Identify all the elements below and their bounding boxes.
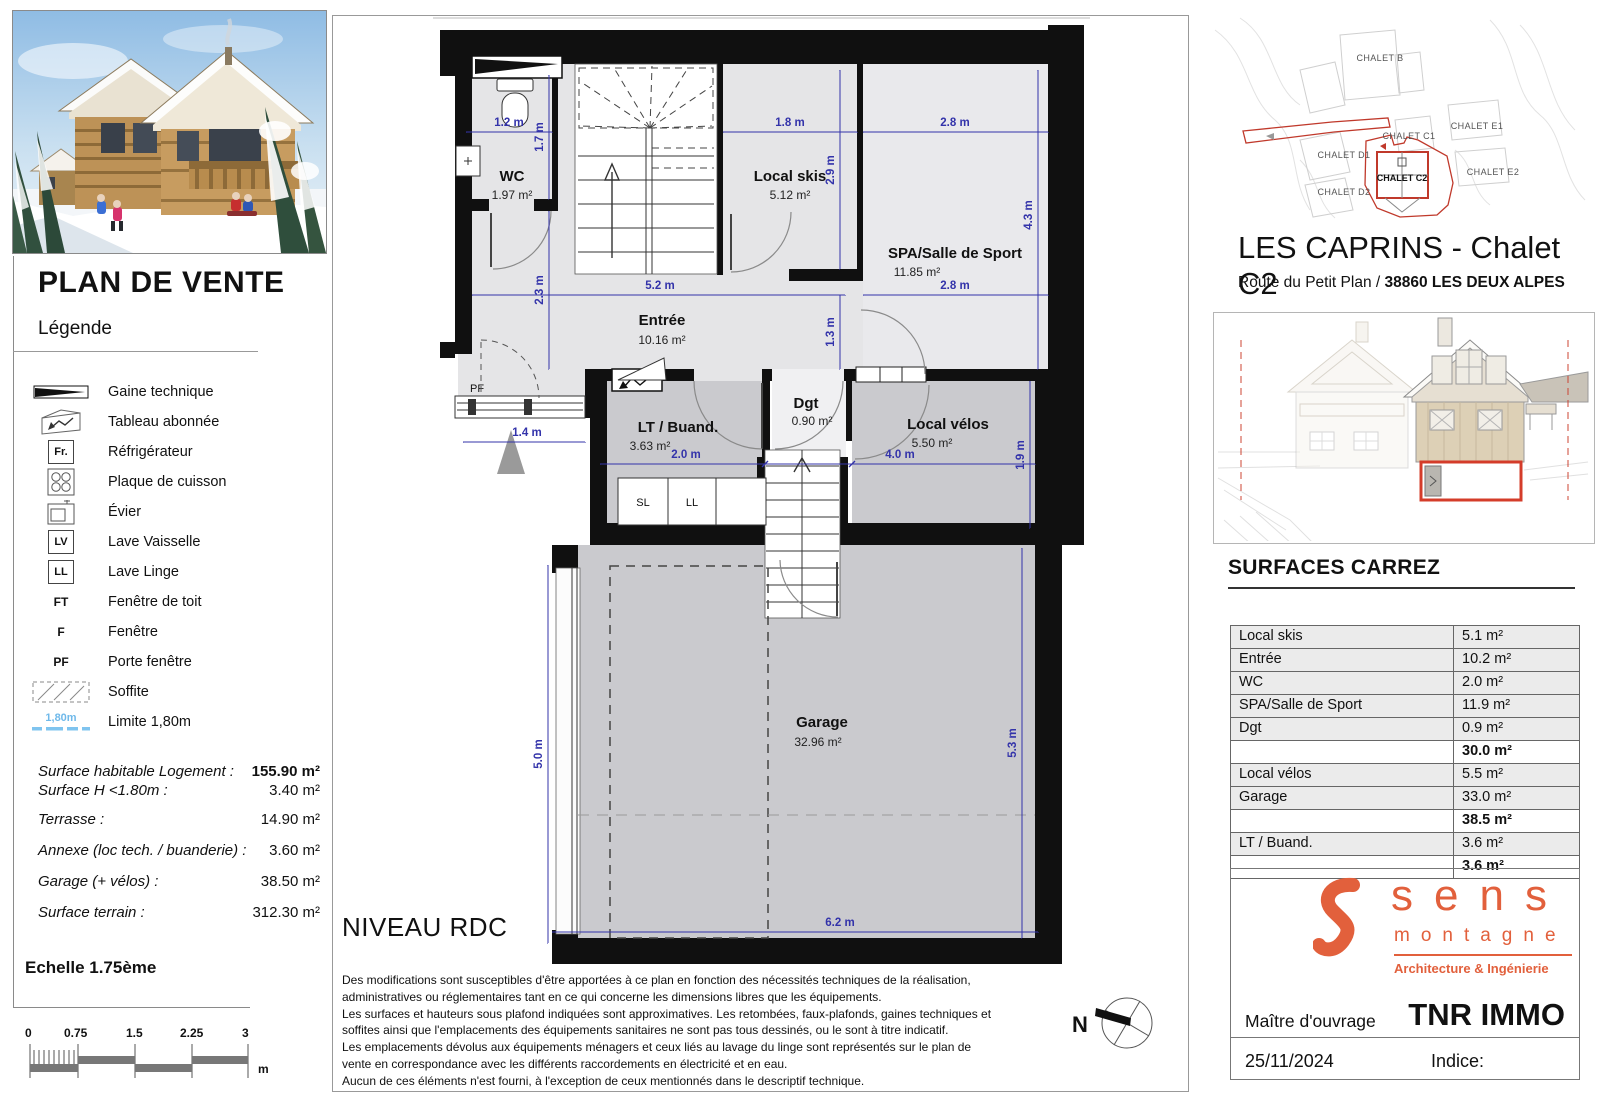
- row-value: 5.1 m²: [1453, 626, 1579, 648]
- dim-label: 1.3 m: [825, 317, 837, 346]
- dim-label: 5.0 m: [533, 739, 545, 768]
- stair-down: [765, 450, 840, 618]
- logo-tagline: Architecture & Ingénierie: [1394, 961, 1549, 976]
- stair-up: [575, 64, 717, 274]
- indice-label: Indice:: [1431, 1051, 1484, 1072]
- disclaimer-line: Aucun de ces éléments n'est fourni, à l'…: [342, 1073, 1182, 1090]
- row-label: LT / Buand.: [1231, 833, 1453, 855]
- table-row: Entrée10.2 m²: [1231, 648, 1579, 671]
- room-name: Garage: [796, 714, 848, 731]
- level-label: NIVEAU RDC: [342, 912, 507, 943]
- dim-label: 1.7 m: [534, 122, 546, 151]
- disclaimer-line: Les emplacements dévolus aux équipements…: [342, 1039, 1182, 1056]
- row-label: Dgt: [1231, 718, 1453, 740]
- pf-label: PF: [470, 383, 484, 395]
- site-label-chalet-b: CHALET B: [1356, 53, 1403, 63]
- room-name: Entrée: [639, 312, 686, 329]
- row-value: 30.0 m²: [1453, 741, 1579, 763]
- table-row: Local vélos5.5 m²: [1231, 763, 1579, 786]
- dim-label: 1.2 m: [494, 117, 523, 129]
- dim-label: 5.2 m: [645, 280, 674, 292]
- sens-montagne-logo-icon: [1313, 875, 1371, 965]
- site-plan: CHALET B CHALET C1 CHALET D1 CHALET D2 C…: [1210, 10, 1600, 225]
- room-area: 10.16 m²: [638, 333, 685, 347]
- disclaimer-line: Des modifications sont susceptibles d'êt…: [342, 972, 1182, 989]
- row-value: 38.5 m²: [1453, 810, 1579, 832]
- logo-brand: sens: [1391, 871, 1568, 921]
- row-label: Garage: [1231, 787, 1453, 809]
- title-block: sens montagne Architecture & Ingénierie …: [1230, 868, 1580, 1080]
- logo-underline: [1394, 954, 1572, 956]
- dim-label: 2.9 m: [825, 155, 837, 184]
- table-row-subtotal: 30.0 m²: [1231, 740, 1579, 763]
- logo-sub: montagne: [1394, 925, 1567, 947]
- row-label: WC: [1231, 672, 1453, 694]
- carrez-title: SURFACES CARREZ: [1228, 556, 1575, 589]
- dim-label: 2.3 m: [534, 275, 546, 304]
- dim-label: 2.8 m: [940, 280, 969, 292]
- dim-label: 5.3 m: [1007, 728, 1019, 757]
- elevation-view: [1213, 312, 1595, 544]
- closet-label-ll: LL: [686, 497, 698, 509]
- double-door-leaf: [856, 367, 926, 382]
- room-name: SPA/Salle de Sport: [888, 245, 1022, 262]
- disclaimer-line: vente en correspondance avec les différe…: [342, 1056, 1182, 1073]
- table-row: Garage33.0 m²: [1231, 786, 1579, 809]
- site-label-chalet-d1: CHALET D1: [1318, 150, 1371, 160]
- table-row: SPA/Salle de Sport11.9 m²: [1231, 694, 1579, 717]
- table-row-subtotal: 38.5 m²: [1231, 809, 1579, 832]
- dim-label: 6.2 m: [825, 917, 854, 929]
- title-block-divider: [1231, 1037, 1579, 1038]
- room-area: 0.90 m²: [792, 414, 833, 428]
- disclaimer-line: Les surfaces et hauteurs sous plafond in…: [342, 1006, 1182, 1023]
- room-area: 3.63 m²: [630, 439, 671, 453]
- row-value: 5.5 m²: [1453, 764, 1579, 786]
- room-area: 11.85 m²: [894, 265, 940, 279]
- table-row: Dgt0.9 m²: [1231, 717, 1579, 740]
- room-area: 5.50 m²: [912, 436, 953, 450]
- row-label: SPA/Salle de Sport: [1231, 695, 1453, 717]
- dim-label: 4.3 m: [1023, 200, 1035, 229]
- room-area: 1.97 m²: [492, 188, 533, 202]
- row-value: 0.9 m²: [1453, 718, 1579, 740]
- dim-label: 1.8 m: [775, 117, 804, 129]
- room-area: 5.12 m²: [770, 188, 811, 202]
- site-label-chalet-c2: CHALET C2: [1377, 173, 1428, 183]
- room-name: WC: [500, 168, 525, 185]
- garage-door: [556, 568, 580, 934]
- closet-units: SL LL: [618, 478, 766, 525]
- dim-label: 2.0 m: [671, 449, 700, 461]
- owner-name: TNR IMMO: [1408, 997, 1565, 1033]
- project-address: Route du Petit Plan / 38860 LES DEUX ALP…: [1238, 274, 1565, 292]
- row-value: 11.9 m²: [1453, 695, 1579, 717]
- room-name: LT / Buand.: [638, 419, 719, 436]
- row-value: 3.6 m²: [1453, 833, 1579, 855]
- row-label: Entrée: [1231, 649, 1453, 671]
- owner-label: Maître d'ouvrage: [1245, 1011, 1376, 1032]
- row-label: Local vélos: [1231, 764, 1453, 786]
- row-value: 10.2 m²: [1453, 649, 1579, 671]
- date-value: 25/11/2024: [1245, 1051, 1334, 1072]
- table-row: Local skis5.1 m²: [1231, 625, 1579, 648]
- row-label: [1231, 810, 1453, 832]
- row-value: 33.0 m²: [1453, 787, 1579, 809]
- room-name: Local vélos: [907, 416, 989, 433]
- disclaimer-line: administratives ou réglementaires tant e…: [342, 989, 1182, 1006]
- address-city: 38860 LES DEUX ALPES: [1384, 274, 1564, 291]
- site-label-chalet-d2: CHALET D2: [1318, 187, 1371, 197]
- dim-label: 1.4 m: [512, 427, 541, 439]
- plan-de-vente-sheet: PLAN DE VENTE Légende Gaine technique Ta…: [0, 0, 1600, 1101]
- address-street: Route du Petit Plan /: [1238, 274, 1384, 291]
- disclaimer-line: soffites ainsi que l'emplacements des éq…: [342, 1022, 1182, 1039]
- carrez-table: Local skis5.1 m² Entrée10.2 m² WC2.0 m² …: [1230, 625, 1580, 879]
- dim-label: 4.0 m: [885, 449, 914, 461]
- site-label-chalet-c1: CHALET C1: [1383, 131, 1436, 141]
- disclaimer: Des modifications sont susceptibles d'êt…: [342, 972, 1182, 1090]
- row-label: Local skis: [1231, 626, 1453, 648]
- row-label: [1231, 741, 1453, 763]
- room-name: Local skis: [754, 168, 827, 185]
- row-value: 2.0 m²: [1453, 672, 1579, 694]
- porte-fenetre: [455, 396, 585, 418]
- dim-label: 1.9 m: [1015, 440, 1027, 469]
- room-area: 32.96 m²: [794, 735, 841, 749]
- site-label-chalet-e1: CHALET E1: [1451, 121, 1503, 131]
- sink-symbol: [456, 146, 480, 176]
- table-row: LT / Buand.3.6 m²: [1231, 832, 1579, 855]
- room-name: Dgt: [794, 395, 819, 412]
- site-label-chalet-e2: CHALET E2: [1467, 167, 1519, 177]
- table-row: WC2.0 m²: [1231, 671, 1579, 694]
- dim-label: 2.8 m: [940, 117, 969, 129]
- gaine-technique-symbol: [472, 56, 562, 78]
- elevation-drawing: [1214, 313, 1592, 541]
- closet-label-sl: SL: [636, 497, 649, 509]
